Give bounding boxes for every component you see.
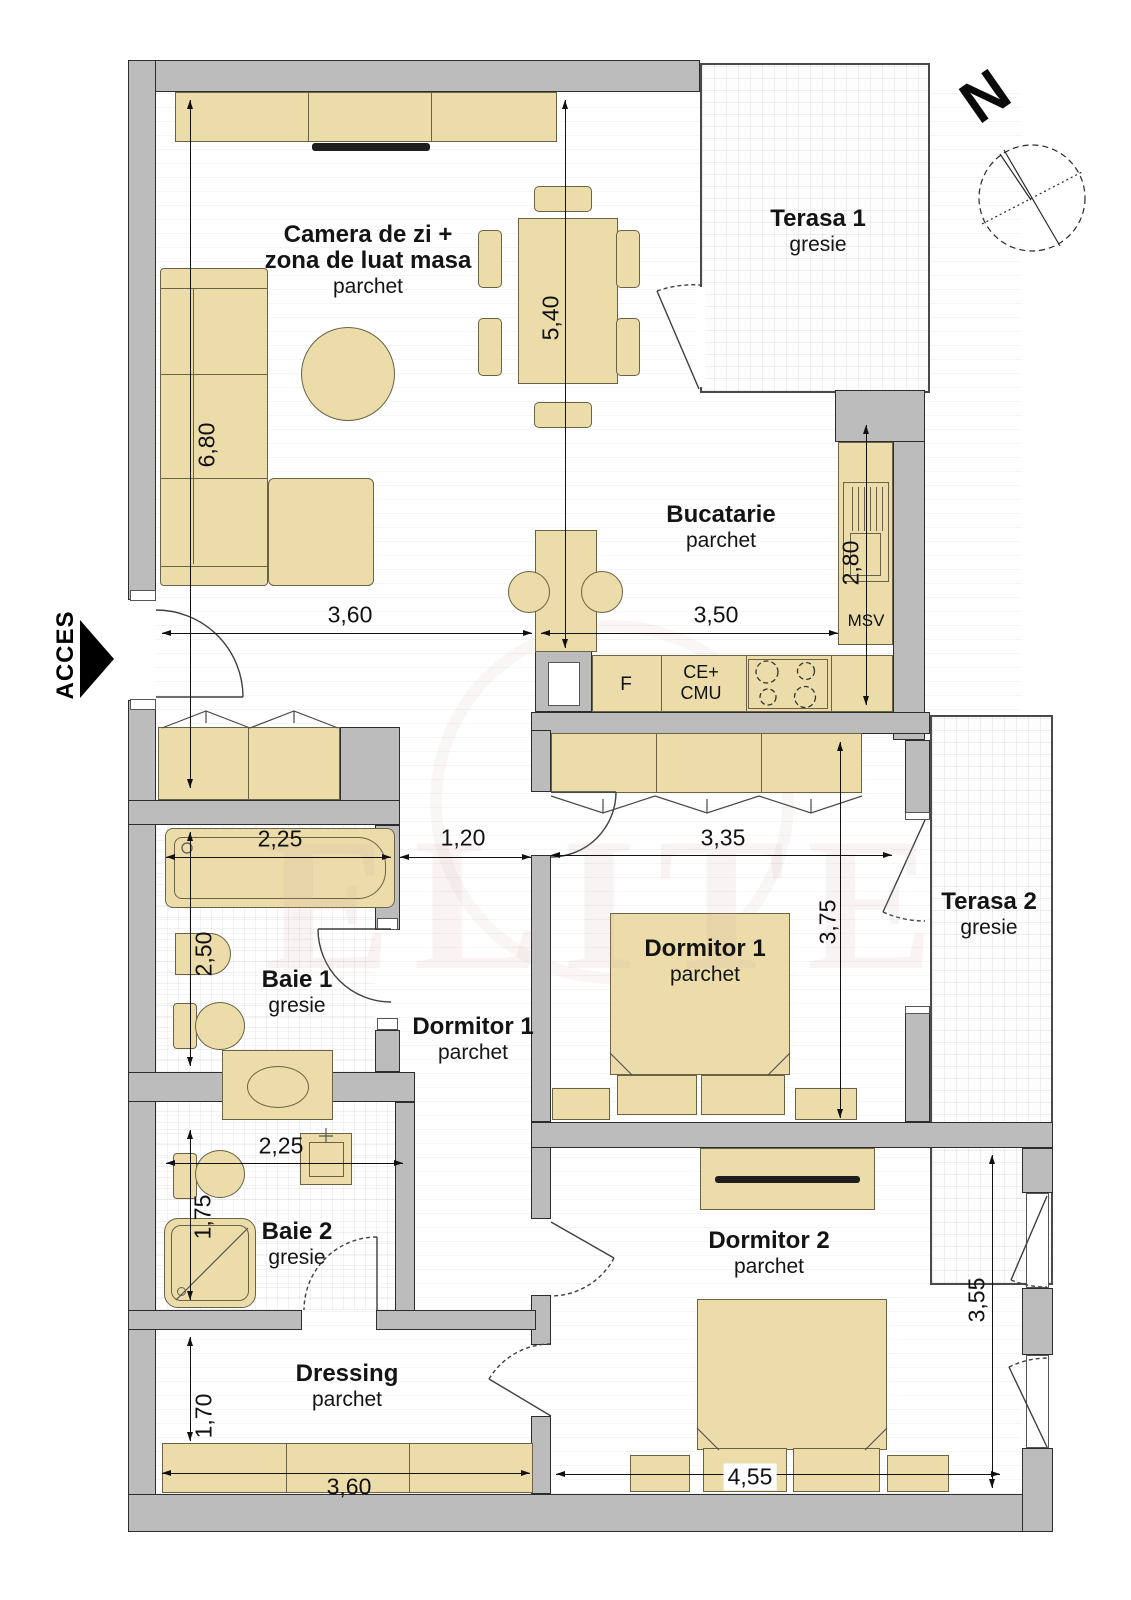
dim-label-kitchen-height: 2,80 bbox=[838, 541, 865, 586]
dormitor2-door bbox=[551, 1222, 614, 1296]
dressing-door bbox=[489, 1344, 551, 1416]
dim-living-height bbox=[190, 100, 191, 788]
terrace1-door bbox=[657, 285, 700, 389]
hob-label-line1: CE+ bbox=[681, 662, 722, 683]
dim-label-dormitor2-height: 3,55 bbox=[964, 1278, 991, 1323]
dim-label-baie2-width: 2,25 bbox=[259, 1133, 304, 1160]
dim-label-dining-height: 5,40 bbox=[538, 296, 565, 341]
room-name: Baie 1 bbox=[262, 967, 333, 993]
access-label: ACCES bbox=[52, 610, 80, 699]
entry-door bbox=[156, 610, 243, 697]
dim-label-dressing-width: 3,60 bbox=[327, 1474, 372, 1501]
room-label-baie1: Baie 1 gresie bbox=[262, 967, 333, 1019]
hob-label: CE+ CMU bbox=[681, 662, 722, 704]
room-name: Terasa 1 bbox=[770, 206, 866, 232]
room-floor-type: gresie bbox=[262, 993, 333, 1019]
room-label-kitchen: Bucatarie parchet bbox=[666, 502, 775, 554]
room-name: Dressing bbox=[296, 1361, 399, 1387]
room-floor-type: parchet bbox=[644, 962, 765, 988]
fridge-label: F bbox=[620, 674, 632, 696]
room-name: Terasa 2 bbox=[941, 889, 1037, 915]
room-label-baie2: Baie 2 gresie bbox=[262, 1219, 333, 1271]
dim-label-baie1-width: 2,25 bbox=[258, 826, 303, 853]
room-name: zona de luat masa bbox=[265, 248, 472, 274]
dim-label-dressing-height: 1,70 bbox=[191, 1394, 218, 1439]
room-name: Dormitor 1 bbox=[644, 936, 765, 962]
room-floor-type: parchet bbox=[708, 1254, 829, 1280]
room-floor-type: gresie bbox=[770, 232, 866, 258]
room-label-hall: Dormitor 1 parchet bbox=[412, 1014, 533, 1066]
dim-baie2-width bbox=[166, 1163, 403, 1164]
room-label-living: Camera de zi + zona de luat masa parchet bbox=[265, 222, 472, 300]
dim-living-width bbox=[162, 633, 532, 634]
room-label-terasa1: Terasa 1 gresie bbox=[770, 206, 866, 258]
room-name: Bucatarie bbox=[666, 502, 775, 528]
room-label-dormitor1: Dormitor 1 parchet bbox=[644, 936, 765, 988]
dim-dormitor2-width bbox=[556, 1474, 1000, 1475]
hob-label-line2: CMU bbox=[681, 683, 722, 704]
room-floor-type: parchet bbox=[412, 1040, 533, 1066]
room-label-dormitor2: Dormitor 2 parchet bbox=[708, 1228, 829, 1280]
room-floor-type: parchet bbox=[666, 528, 775, 554]
dim-label-dormitor1-height: 3,75 bbox=[815, 900, 842, 945]
dim-label-dormitor2-width: 4,55 bbox=[724, 1464, 777, 1491]
dim-kitchen-height bbox=[866, 425, 867, 705]
room-floor-type: parchet bbox=[265, 274, 472, 300]
dim-label-living-height: 6,80 bbox=[194, 423, 221, 468]
dim-label-hall-width: 1,20 bbox=[441, 825, 486, 852]
dim-baie1-width bbox=[166, 857, 391, 858]
room-label-terasa2: Terasa 2 gresie bbox=[941, 889, 1037, 941]
dim-label-dormitor1-width: 3,35 bbox=[701, 825, 746, 852]
room-floor-type: parchet bbox=[296, 1387, 399, 1413]
watermark: ELITE bbox=[265, 796, 956, 1014]
dim-dormitor2-height bbox=[992, 1155, 993, 1488]
dim-label-living-width: 3,60 bbox=[328, 602, 373, 629]
window-casement bbox=[1009, 1358, 1047, 1447]
dim-label-baie1-height: 2,50 bbox=[191, 932, 218, 977]
room-label-dressing: Dressing parchet bbox=[296, 1361, 399, 1413]
window-casement bbox=[1011, 1196, 1047, 1287]
floor-plan: 3,60 3,50 6,80 5,40 2,80 2,25 2,50 1,20 … bbox=[0, 0, 1131, 1600]
access-arrow-icon bbox=[80, 620, 114, 698]
dim-dining-height bbox=[565, 100, 566, 648]
dim-label-kitchen-width: 3,50 bbox=[694, 602, 739, 629]
room-name: Dormitor 2 bbox=[708, 1228, 829, 1254]
dim-hall-width bbox=[400, 857, 531, 858]
dim-kitchen-width bbox=[541, 633, 838, 634]
dim-label-baie2-height: 1,75 bbox=[190, 1195, 217, 1240]
room-floor-type: gresie bbox=[262, 1245, 333, 1271]
room-name: Baie 2 bbox=[262, 1219, 333, 1245]
room-name: Dormitor 1 bbox=[412, 1014, 533, 1040]
room-name: Camera de zi + bbox=[265, 222, 472, 248]
stove-burners bbox=[756, 661, 816, 708]
room-floor-type: gresie bbox=[941, 915, 1037, 941]
compass-icon bbox=[979, 145, 1085, 251]
